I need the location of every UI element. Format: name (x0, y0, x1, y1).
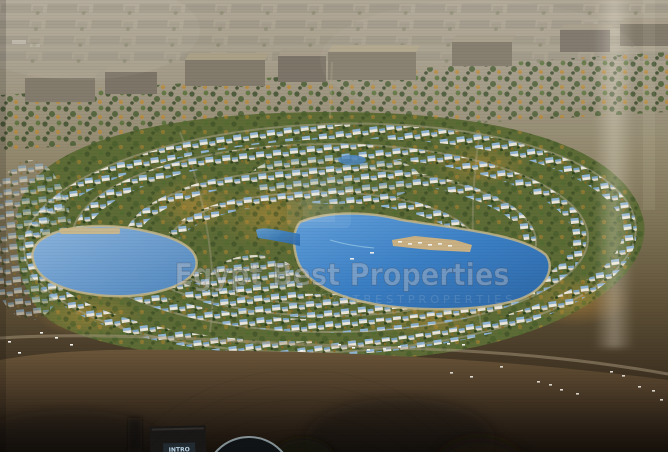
masterplan-photo: Egypt Best Properties E G Y P T B E S T … (0, 0, 668, 452)
left-edge-shadow (0, 0, 6, 452)
scene: Egypt Best Properties E G Y P T B E S T … (0, 0, 668, 452)
scanline-overlay (0, 0, 668, 452)
screen-reflections: INTRO (0, 0, 668, 452)
